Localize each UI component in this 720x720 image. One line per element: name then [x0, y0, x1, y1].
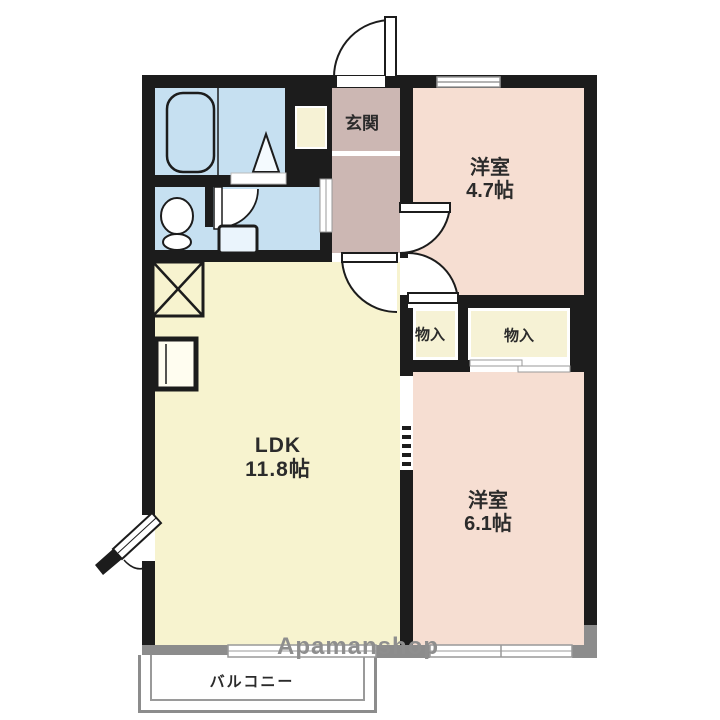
- room-4-7-label: 洋室 4.7帖: [466, 157, 514, 203]
- entrance-door: [334, 17, 396, 87]
- diagonal-door: [95, 513, 161, 575]
- room-6-1-name: 洋室: [464, 490, 512, 513]
- door-ldk: [342, 253, 397, 312]
- toilet: [161, 198, 193, 250]
- washing-machine-pan: [153, 262, 203, 316]
- bath-door-threshold: [231, 173, 286, 184]
- closet-right-label: 物入: [504, 327, 534, 344]
- washbasin: [219, 226, 257, 253]
- washroom-sliding-door: [320, 179, 332, 232]
- room-6-1-size: 6.1帖: [464, 513, 512, 536]
- ldk-label: LDK 11.8帖: [245, 434, 311, 482]
- bathtub: [167, 88, 218, 175]
- shower-triangle: [253, 134, 279, 172]
- room-4-7-name: 洋室: [466, 157, 514, 180]
- closet-left-label: 物入: [415, 326, 445, 343]
- toilet-partition-wall: [205, 187, 213, 227]
- door-closet: [408, 253, 458, 303]
- ldk-name: LDK: [245, 434, 311, 458]
- washroom-door: [214, 187, 258, 229]
- genkan-step: [332, 151, 400, 156]
- door-room47: [400, 203, 450, 253]
- window-room61: [430, 645, 572, 657]
- room-6-1-label: 洋室 6.1帖: [464, 490, 512, 536]
- ldk-room61-sliding-door: [400, 376, 413, 470]
- balcony-label: バルコニー: [210, 673, 295, 690]
- window-top: [437, 77, 500, 87]
- refrigerator-space: [156, 339, 196, 389]
- floor-plan: 玄関 洋室 4.7帖 物入 物入 LDK 11.8帖 洋室 6.1帖 バルコニー…: [0, 0, 720, 720]
- fixtures-overlay: [0, 0, 720, 720]
- room-4-7-size: 4.7帖: [466, 180, 514, 203]
- closet-sliding-doors: [470, 360, 570, 372]
- genkan-label: 玄関: [345, 114, 379, 134]
- ldk-size: 11.8帖: [245, 458, 311, 482]
- watermark-brand: Apamanshop: [277, 633, 439, 661]
